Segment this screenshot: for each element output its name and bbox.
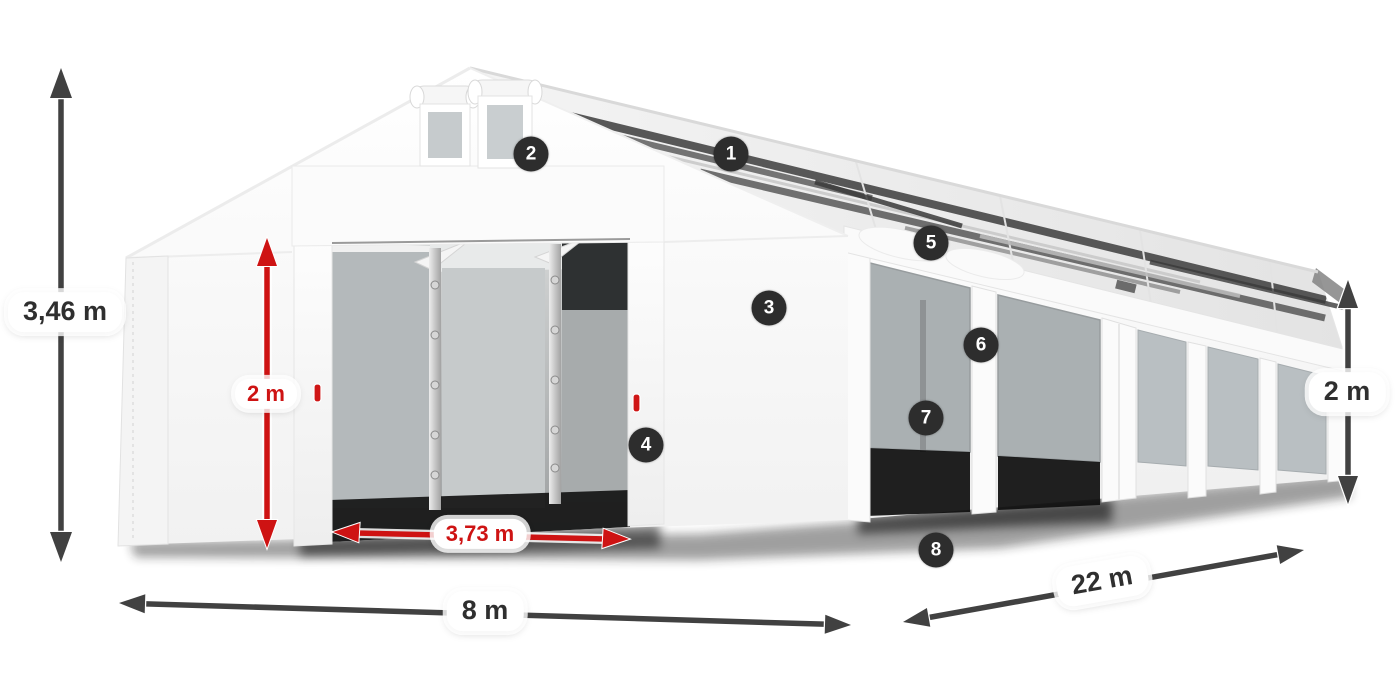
door-tie-left bbox=[314, 384, 321, 402]
total-height-label: 3,46 m bbox=[8, 292, 122, 332]
front-left-corner-pillar bbox=[118, 256, 168, 546]
callout-badge-7: 7 bbox=[909, 401, 944, 436]
interior-mesh-panel bbox=[330, 252, 430, 508]
callout-badge-3: 3 bbox=[752, 291, 787, 326]
door-header-beam bbox=[292, 166, 664, 246]
callout-badge-4: 4 bbox=[629, 428, 664, 463]
callout-badge-5: 5 bbox=[914, 226, 949, 261]
callout-badge-2: 2 bbox=[514, 137, 549, 172]
tent-illustration bbox=[0, 0, 1400, 700]
side-height-label: 2 m bbox=[1309, 372, 1386, 412]
tent-dimension-diagram: 3,46 m 2 m 3,73 m 8 m 22 m 2 m 1 2 3 4 5… bbox=[0, 0, 1400, 700]
side-mesh-panel-2 bbox=[998, 295, 1100, 510]
door-width-label: 3,73 m bbox=[434, 519, 527, 549]
door-tie-right bbox=[633, 394, 640, 412]
front-width-label: 8 m bbox=[447, 591, 524, 631]
side-mesh-panel-1 bbox=[866, 262, 970, 516]
door-height-label: 2 m bbox=[235, 379, 297, 409]
callout-badge-6: 6 bbox=[964, 328, 999, 363]
callout-badge-1: 1 bbox=[714, 137, 749, 172]
door-jamb-right bbox=[628, 236, 664, 526]
door-jamb-left bbox=[294, 240, 332, 546]
callout-badge-8: 8 bbox=[919, 533, 954, 568]
entrance-opening bbox=[292, 166, 664, 546]
